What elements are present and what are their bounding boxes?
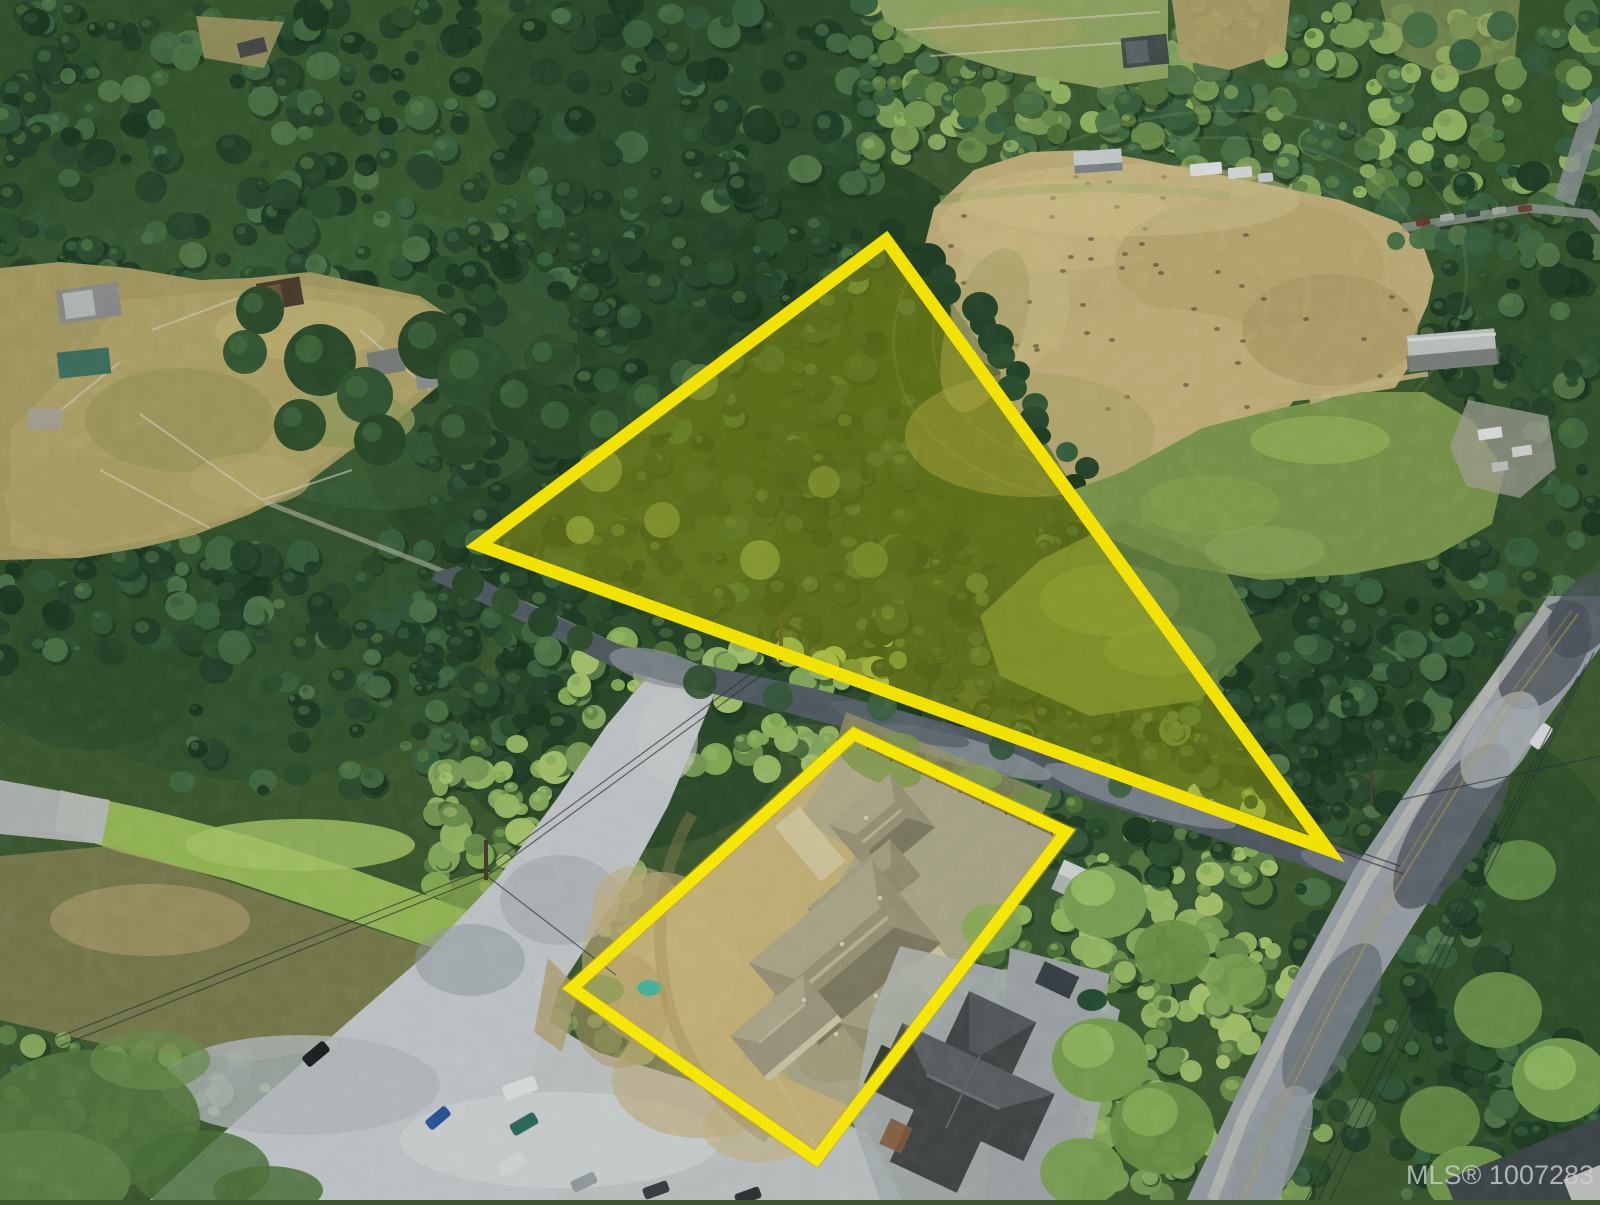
svg-text:MLS® 1007283: MLS® 1007283 <box>1406 1160 1594 1190</box>
